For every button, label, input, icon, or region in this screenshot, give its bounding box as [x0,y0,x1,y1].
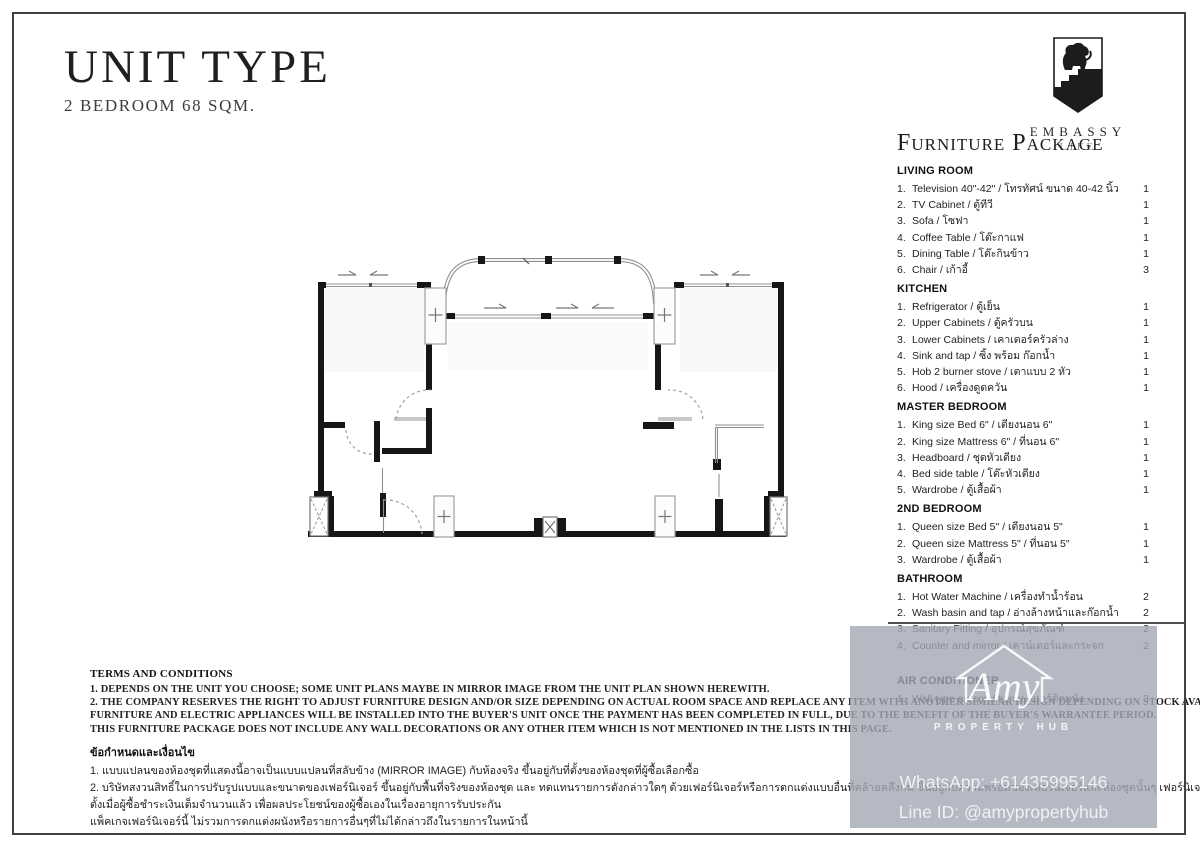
item-number: 1. [897,417,912,433]
item-label: King size Bed 6" / เตียงนอน 6" [912,417,1052,433]
item-label: Bed side table / โต๊ะหัวเตียง [912,466,1040,482]
furniture-section: MASTER BEDROOM1.King size Bed 6" / เตียง… [897,400,1149,498]
item-label: Dining Table / โต๊ะกินข้าว [912,246,1029,262]
item-number: 4. [897,466,912,482]
item-label: Wardrobe / ตู้เสื้อผ้า [912,482,1002,498]
furniture-item-row: 2.Wash basin and tap / อ่างล้างหน้าและก๊… [897,605,1149,621]
furniture-item-row: 1.Queen size Bed 5" / เตียงนอน 5"1 [897,519,1149,535]
house-outline-icon: Amy [944,638,1064,735]
item-label: Queen size Bed 5" / เตียงนอน 5" [912,519,1063,535]
item-number: 6. [897,262,912,278]
item-quantity: 1 [1137,519,1149,535]
item-quantity: 1 [1137,536,1149,552]
item-number: 4. [897,348,912,364]
item-label: King size Mattress 6" / ที่นอน 6" [912,434,1059,450]
furniture-section: 2ND BEDROOM1.Queen size Bed 5" / เตียงนอ… [897,502,1149,568]
furniture-item-row: 4.Bed side table / โต๊ะหัวเตียง1 [897,466,1149,482]
furniture-item-row: 1.King size Bed 6" / เตียงนอน 6"1 [897,417,1149,433]
furniture-item-row: 3.Wardrobe / ตู้เสื้อผ้า1 [897,552,1149,568]
item-quantity: 3 [1137,262,1149,278]
item-number: 2. [897,315,912,331]
furniture-item-row: 6.Chair / เก้าอี้3 [897,262,1149,278]
furniture-section-title: BATHROOM [897,572,1149,587]
item-quantity: 1 [1137,348,1149,364]
item-number: 1. [897,589,912,605]
furniture-section: KITCHEN1.Refrigerator / ตู้เย็น12.Upper … [897,282,1149,396]
furniture-item-row: 3.Sofa / โซฟา1 [897,213,1149,229]
page-subtitle: 2 BEDROOM 68 SQM. [64,96,331,116]
furniture-item-row: 4.Coffee Table / โต๊ะกาแฟ1 [897,230,1149,246]
item-quantity: 1 [1137,434,1149,450]
item-label: Coffee Table / โต๊ะกาแฟ [912,230,1024,246]
item-quantity: 1 [1137,552,1149,568]
item-number: 5. [897,246,912,262]
item-quantity: 1 [1137,380,1149,396]
furniture-item-row: 6.Hood / เครื่องดูดควัน1 [897,380,1149,396]
item-label: Hob 2 burner stove / เตาแบบ 2 หัว [912,364,1071,380]
furniture-item-row: 2.TV Cabinet / ตู้ทีวี1 [897,197,1149,213]
header: UNIT TYPE 2 BEDROOM 68 SQM. [64,42,331,116]
item-quantity: 1 [1137,315,1149,331]
item-number: 2. [897,197,912,213]
watermark-subtitle: PROPERTY HUB [850,722,1157,733]
item-number: 2. [897,434,912,450]
watermark-line-id: Line ID: @amypropertyhub [850,802,1157,823]
furniture-item-row: 2.Upper Cabinets / ตู้ครัวบน1 [897,315,1149,331]
item-label: Headboard / ชุดหัวเตียง [912,450,1021,466]
section-divider-line [888,622,1184,624]
item-label: Queen size Mattress 5" / ที่นอน 5" [912,536,1070,552]
furniture-item-row: 2.Queen size Mattress 5" / ที่นอน 5"1 [897,536,1149,552]
item-quantity: 1 [1137,482,1149,498]
furniture-package-heading: Furniture Package [897,130,1149,157]
furniture-item-row: 5.Dining Table / โต๊ะกินข้าว1 [897,246,1149,262]
item-number: 3. [897,213,912,229]
watermark-script: Amy [965,664,1039,709]
item-quantity: 1 [1137,364,1149,380]
item-quantity: 1 [1137,466,1149,482]
balcony-rail [444,256,655,304]
item-number: 3. [897,552,912,568]
lion-shield-icon [1052,101,1104,118]
item-number: 5. [897,482,912,498]
item-label: TV Cabinet / ตู้ทีวี [912,197,993,213]
item-label: Sofa / โซฟา [912,213,968,229]
item-label: Refrigerator / ตู้เย็น [912,299,1000,315]
item-quantity: 1 [1137,230,1149,246]
door-swing-arcs [346,390,703,534]
floor-plan [298,250,792,544]
item-quantity: 2 [1137,589,1149,605]
item-quantity: 2 [1137,605,1149,621]
furniture-section-title: KITCHEN [897,282,1149,297]
item-number: 3. [897,332,912,348]
item-label: Wash basin and tap / อ่างล้างหน้าและก๊อก… [912,605,1119,621]
furniture-item-row: 1.Hot Water Machine / เครื่องทำน้ำร้อน2 [897,589,1149,605]
item-label: Hot Water Machine / เครื่องทำน้ำร้อน [912,589,1083,605]
furniture-item-row: 4.Sink and tap / ซิ้ง พร้อม ก๊อกน้ำ1 [897,348,1149,364]
furniture-item-row: 5.Hob 2 burner stove / เตาแบบ 2 หัว1 [897,364,1149,380]
furniture-item-row: 3.Lower Cabinets / เคาเตอร์ครัวล่าง1 [897,332,1149,348]
furniture-section: LIVING ROOM1.Television 40"-42" / โทรทัศ… [897,164,1149,278]
item-number: 1. [897,519,912,535]
item-label: Upper Cabinets / ตู้ครัวบน [912,315,1033,331]
item-label: Wardrobe / ตู้เสื้อผ้า [912,552,1002,568]
item-quantity: 1 [1137,332,1149,348]
furniture-section-title: LIVING ROOM [897,164,1149,179]
furniture-item-row: 1.Television 40"-42" / โทรทัศน์ ขนาด 40-… [897,181,1149,197]
item-quantity: 1 [1137,213,1149,229]
item-number: 4. [897,230,912,246]
item-quantity: 1 [1137,450,1149,466]
item-quantity: 1 [1137,197,1149,213]
furniture-package-panel: Furniture Package LIVING ROOM1.Televisio… [897,130,1149,707]
item-label: Chair / เก้าอี้ [912,262,968,278]
item-quantity: 1 [1137,299,1149,315]
item-number: 6. [897,380,912,396]
item-number: 5. [897,364,912,380]
furniture-section-title: MASTER BEDROOM [897,400,1149,415]
item-number: 3. [897,450,912,466]
item-number: 2. [897,536,912,552]
item-quantity: 1 [1137,181,1149,197]
item-number: 1. [897,181,912,197]
furniture-item-row: 5.Wardrobe / ตู้เสื้อผ้า1 [897,482,1149,498]
watermark-overlay: Amy PROPERTY HUB WhatsApp: +61435995146 … [850,626,1157,828]
item-label: Lower Cabinets / เคาเตอร์ครัวล่าง [912,332,1069,348]
watermark-whatsapp: WhatsApp: +61435995146 [850,772,1157,793]
item-number: 2. [897,605,912,621]
item-label: Hood / เครื่องดูดควัน [912,380,1007,396]
item-label: Television 40"-42" / โทรทัศน์ ขนาด 40-42… [912,181,1119,197]
furniture-item-row: 1.Refrigerator / ตู้เย็น1 [897,299,1149,315]
furniture-item-row: 2.King size Mattress 6" / ที่นอน 6"1 [897,434,1149,450]
item-number: 1. [897,299,912,315]
item-quantity: 1 [1137,246,1149,262]
item-quantity: 1 [1137,417,1149,433]
room-tints [324,288,777,372]
furniture-section-title: 2ND BEDROOM [897,502,1149,517]
furniture-item-row: 3.Headboard / ชุดหัวเตียง1 [897,450,1149,466]
page-title: UNIT TYPE [64,42,331,92]
item-label: Sink and tap / ซิ้ง พร้อม ก๊อกน้ำ [912,348,1055,364]
